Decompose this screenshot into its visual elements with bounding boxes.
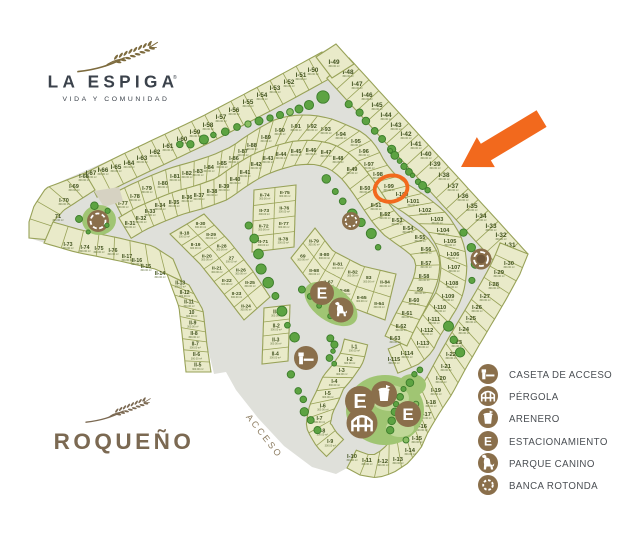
svg-text:300.00 m²: 300.00 m² <box>192 174 203 177</box>
svg-text:300.00 m²: 300.00 m² <box>168 205 179 208</box>
svg-text:300.00 m²: 300.00 m² <box>279 211 290 214</box>
svg-text:300.00 m²: 300.00 m² <box>458 332 469 335</box>
svg-text:300.00 m²: 300.00 m² <box>444 244 455 247</box>
svg-text:300.00 m²: 300.00 m² <box>447 189 458 192</box>
svg-text:300.00 m²: 300.00 m² <box>124 226 135 229</box>
svg-text:300.00 m²: 300.00 m² <box>495 238 506 241</box>
svg-text:300.00 m²: 300.00 m² <box>191 357 202 360</box>
svg-text:300.00 m²: 300.00 m² <box>420 266 431 269</box>
svg-text:300.00 m²: 300.00 m² <box>78 179 89 182</box>
svg-text:300.00 m²: 300.00 m² <box>317 408 328 411</box>
svg-text:300.00 m²: 300.00 m² <box>274 133 285 136</box>
svg-text:300.00 m²: 300.00 m² <box>259 198 270 201</box>
svg-text:300.00 m²: 300.00 m² <box>240 309 251 312</box>
svg-text:300.00 m²: 300.00 m² <box>466 209 477 212</box>
svg-text:300.00 m²: 300.00 m² <box>465 321 476 324</box>
svg-text:300.00 m²: 300.00 m² <box>400 137 411 140</box>
svg-text:300.00 m²: 300.00 m² <box>370 208 381 211</box>
svg-text:300.00 m²: 300.00 m² <box>259 213 270 216</box>
svg-text:300.00 m²: 300.00 m² <box>181 176 192 179</box>
svg-text:300.00 m²: 300.00 m² <box>349 350 360 353</box>
svg-text:300.00 m²: 300.00 m² <box>392 462 403 465</box>
svg-text:300.00 m²: 300.00 m² <box>335 137 346 140</box>
svg-text:300.00 m²: 300.00 m² <box>411 441 422 444</box>
svg-text:300.00 m²: 300.00 m² <box>188 336 199 339</box>
svg-text:300.00 m²: 300.00 m² <box>290 154 301 157</box>
svg-text:300.00 m²: 300.00 m² <box>211 271 222 274</box>
svg-text:VIDA Y COMUNIDAD: VIDA Y COMUNIDAD <box>62 96 169 103</box>
svg-text:300.00 m²: 300.00 m² <box>149 155 160 158</box>
svg-text:300.00 m²: 300.00 m² <box>52 219 63 222</box>
svg-text:300.00 m²: 300.00 m² <box>244 285 255 288</box>
svg-text:300.00 m²: 300.00 m² <box>346 172 357 175</box>
svg-text:300.00 m²: 300.00 m² <box>183 305 194 308</box>
svg-text:300.00 m²: 300.00 m² <box>189 135 200 138</box>
svg-text:300.00 m²: 300.00 m² <box>62 247 73 250</box>
svg-text:300.00 m²: 300.00 m² <box>380 118 391 121</box>
svg-text:300.00 m²: 300.00 m² <box>279 195 290 198</box>
svg-text:300.00 m²: 300.00 m² <box>445 357 456 360</box>
svg-text:300.00 m²: 300.00 m² <box>358 154 369 157</box>
svg-text:300.00 m²: 300.00 m² <box>186 315 197 318</box>
svg-text:300.00 m²: 300.00 m² <box>431 222 442 225</box>
svg-text:ESTACIONAMIENTO: ESTACIONAMIENTO <box>509 437 608 448</box>
svg-text:300.00 m²: 300.00 m² <box>488 287 499 290</box>
svg-text:300.00 m²: 300.00 m² <box>471 310 482 313</box>
svg-text:300.00 m²: 300.00 m² <box>250 167 261 170</box>
svg-text:300.00 m²: 300.00 m² <box>135 221 146 224</box>
svg-text:300.00 m²: 300.00 m² <box>275 157 286 160</box>
svg-text:300.00 m²: 300.00 m² <box>190 247 201 250</box>
svg-text:300.00 m²: 300.00 m² <box>479 299 490 302</box>
svg-text:300.00 m²: 300.00 m² <box>493 275 504 278</box>
svg-text:300.00 m²: 300.00 m² <box>260 140 271 143</box>
svg-text:300.00 m²: 300.00 m² <box>235 273 246 276</box>
svg-text:300.00 m²: 300.00 m² <box>110 170 121 173</box>
svg-text:300.00 m²: 300.00 m² <box>420 157 431 160</box>
svg-text:300.00 m²: 300.00 m² <box>169 179 180 182</box>
svg-text:300.00 m²: 300.00 m² <box>446 286 457 289</box>
svg-text:300.00 m²: 300.00 m² <box>306 129 317 132</box>
svg-text:300.00 m²: 300.00 m² <box>290 129 301 132</box>
svg-text:300.00 m²: 300.00 m² <box>322 396 333 399</box>
svg-text:CASETA DE ACCESO: CASETA DE ACCESO <box>509 370 612 381</box>
svg-text:300.00 m²: 300.00 m² <box>190 347 201 350</box>
svg-text:300.00 m²: 300.00 m² <box>359 191 370 194</box>
svg-text:300.00 m²: 300.00 m² <box>401 316 412 319</box>
svg-text:300.00 m²: 300.00 m² <box>408 303 419 306</box>
svg-text:300.00 m²: 300.00 m² <box>140 269 151 272</box>
svg-text:300.00 m²: 300.00 m² <box>388 362 399 365</box>
svg-text:300.00 m²: 300.00 m² <box>278 226 289 229</box>
svg-text:300.00 m²: 300.00 m² <box>154 208 165 211</box>
svg-text:300.00 m²: 300.00 m² <box>305 153 316 156</box>
svg-text:300.00 m²: 300.00 m² <box>421 333 432 336</box>
svg-text:300.00 m²: 300.00 m² <box>320 132 331 135</box>
svg-text:300.00 m²: 300.00 m² <box>319 257 330 260</box>
svg-text:300.00 m²: 300.00 m² <box>328 65 339 68</box>
svg-text:300.00 m²: 300.00 m² <box>420 252 431 255</box>
svg-text:300.00 m²: 300.00 m² <box>215 120 226 123</box>
svg-text:300.00 m²: 300.00 m² <box>430 393 441 396</box>
svg-text:PARQUE CANINO: PARQUE CANINO <box>509 459 595 470</box>
svg-text:300.00 m²: 300.00 m² <box>379 217 390 220</box>
svg-text:300.00 m²: 300.00 m² <box>389 341 400 344</box>
svg-text:300.00 m²: 300.00 m² <box>179 295 190 298</box>
svg-text:300.00 m²: 300.00 m² <box>256 98 267 101</box>
svg-text:300.00 m²: 300.00 m² <box>371 108 382 111</box>
svg-text:300.00 m²: 300.00 m² <box>383 189 394 192</box>
svg-text:300.00 m²: 300.00 m² <box>270 357 281 360</box>
svg-text:300.00 m²: 300.00 m² <box>162 149 173 152</box>
svg-text:300.00 m²: 300.00 m² <box>457 199 468 202</box>
svg-text:300.00 m²: 300.00 m² <box>404 453 415 456</box>
svg-text:300.00 m²: 300.00 m² <box>129 199 140 202</box>
svg-text:300.00 m²: 300.00 m² <box>417 346 428 349</box>
svg-text:300.00 m²: 300.00 m² <box>117 206 128 209</box>
svg-text:300.00 m²: 300.00 m² <box>407 204 418 207</box>
svg-text:300.00 m²: 300.00 m² <box>402 231 413 234</box>
svg-text:300.00 m²: 300.00 m² <box>395 329 406 332</box>
svg-text:300.00 m²: 300.00 m² <box>175 285 186 288</box>
svg-text:E: E <box>484 434 492 448</box>
svg-text:300.00 m²: 300.00 m² <box>216 248 227 251</box>
svg-text:300.00 m²: 300.00 m² <box>93 251 104 254</box>
svg-text:E: E <box>317 286 328 303</box>
svg-text:300.00 m²: 300.00 m² <box>448 270 459 273</box>
svg-text:300.00 m²: 300.00 m² <box>154 276 165 279</box>
svg-text:300.00 m²: 300.00 m² <box>270 343 281 346</box>
svg-text:300.00 m²: 300.00 m² <box>157 186 168 189</box>
svg-text:300.00 m²: 300.00 m² <box>295 78 306 81</box>
svg-text:300.00 m²: 300.00 m² <box>332 267 343 270</box>
svg-text:300.00 m²: 300.00 m² <box>141 191 152 194</box>
svg-text:300.00 m²: 300.00 m² <box>226 260 237 263</box>
svg-text:300.00 m²: 300.00 m² <box>344 362 355 365</box>
svg-text:300.00 m²: 300.00 m² <box>418 279 429 282</box>
svg-text:300.00 m²: 300.00 m² <box>237 154 248 157</box>
svg-text:ROQUEÑO: ROQUEÑO <box>54 429 195 454</box>
svg-text:300.00 m²: 300.00 m² <box>438 178 449 181</box>
svg-text:300.00 m²: 300.00 m² <box>416 429 427 432</box>
svg-text:300.00 m²: 300.00 m² <box>379 285 390 288</box>
svg-text:300.00 m²: 300.00 m² <box>58 203 69 206</box>
svg-text:LA ESPIGA: LA ESPIGA <box>48 72 179 92</box>
svg-text:300.00 m²: 300.00 m² <box>242 105 253 108</box>
svg-text:ARENERO: ARENERO <box>509 414 560 425</box>
svg-text:300.00 m²: 300.00 m² <box>246 148 257 151</box>
svg-text:300.00 m²: 300.00 m² <box>195 226 206 229</box>
svg-text:300.00 m²: 300.00 m² <box>193 198 204 201</box>
svg-text:300.00 m²: 300.00 m² <box>347 275 358 278</box>
svg-text:PÉRGOLA: PÉRGOLA <box>509 392 559 403</box>
svg-text:300.00 m²: 300.00 m² <box>503 266 514 269</box>
svg-text:300.00 m²: 300.00 m² <box>434 310 445 313</box>
svg-text:300.00 m²: 300.00 m² <box>425 405 436 408</box>
svg-text:300.00 m²: 300.00 m² <box>346 459 357 462</box>
svg-text:300.00 m²: 300.00 m² <box>201 258 212 261</box>
svg-text:300.00 m²: 300.00 m² <box>308 244 319 247</box>
svg-text:300.00 m²: 300.00 m² <box>401 356 412 359</box>
svg-text:300.00 m²: 300.00 m² <box>342 75 353 78</box>
svg-text:300.00 m²: 300.00 m² <box>361 463 372 466</box>
svg-text:300.00 m²: 300.00 m² <box>144 214 155 217</box>
svg-text:®: ® <box>173 74 177 81</box>
svg-text:300.00 m²: 300.00 m² <box>262 161 273 164</box>
svg-text:300.00 m²: 300.00 m² <box>258 229 269 232</box>
svg-text:300.00 m²: 300.00 m² <box>429 167 440 170</box>
svg-text:300.00 m²: 300.00 m² <box>216 166 227 169</box>
svg-text:300.00 m²: 300.00 m² <box>363 280 374 283</box>
svg-text:300.00 m²: 300.00 m² <box>329 384 340 387</box>
svg-text:300.00 m²: 300.00 m² <box>356 300 367 303</box>
svg-text:300.00 m²: 300.00 m² <box>231 296 242 299</box>
svg-text:300.00 m²: 300.00 m² <box>442 299 453 302</box>
svg-text:300.00 m²: 300.00 m² <box>440 369 451 372</box>
svg-text:E: E <box>402 405 413 424</box>
svg-text:300.00 m²: 300.00 m² <box>320 155 331 158</box>
svg-text:300.00 m²: 300.00 m² <box>428 322 439 325</box>
svg-text:300.00 m²: 300.00 m² <box>410 147 421 150</box>
svg-text:300.00 m²: 300.00 m² <box>447 257 458 260</box>
svg-text:300.00 m²: 300.00 m² <box>192 368 203 371</box>
svg-text:300.00 m²: 300.00 m² <box>229 182 240 185</box>
svg-text:300.00 m²: 300.00 m² <box>437 233 448 236</box>
svg-text:300.00 m²: 300.00 m² <box>123 166 134 169</box>
svg-text:300.00 m²: 300.00 m² <box>187 326 198 329</box>
svg-text:300.00 m²: 300.00 m² <box>283 85 294 88</box>
svg-text:300.00 m²: 300.00 m² <box>332 161 343 164</box>
svg-text:300.00 m²: 300.00 m² <box>269 91 280 94</box>
svg-text:300.00 m²: 300.00 m² <box>68 189 79 192</box>
svg-text:300.00 m²: 300.00 m² <box>218 189 229 192</box>
svg-text:300.00 m²: 300.00 m² <box>179 236 190 239</box>
svg-text:300.00 m²: 300.00 m² <box>435 381 446 384</box>
svg-text:300.00 m²: 300.00 m² <box>97 173 108 176</box>
svg-text:300.00 m²: 300.00 m² <box>350 144 361 147</box>
svg-text:300.00 m²: 300.00 m² <box>205 237 216 240</box>
svg-text:300.00 m²: 300.00 m² <box>79 250 90 253</box>
svg-text:300.00 m²: 300.00 m² <box>206 194 217 197</box>
svg-text:300.00 m²: 300.00 m² <box>325 444 336 447</box>
svg-text:300.00 m²: 300.00 m² <box>377 464 388 467</box>
svg-text:300.00 m²: 300.00 m² <box>221 283 232 286</box>
svg-text:300.00 m²: 300.00 m² <box>228 113 239 116</box>
svg-text:BANCA ROTONDA: BANCA ROTONDA <box>509 481 598 492</box>
svg-text:300.00 m²: 300.00 m² <box>203 170 214 173</box>
svg-text:300.00 m²: 300.00 m² <box>373 306 384 309</box>
svg-text:300.00 m²: 300.00 m² <box>361 98 372 101</box>
svg-text:300.00 m²: 300.00 m² <box>475 219 486 222</box>
svg-text:300.00 m²: 300.00 m² <box>239 175 250 178</box>
svg-text:300.00 m²: 300.00 m² <box>307 73 318 76</box>
svg-text:300.00 m²: 300.00 m² <box>136 161 147 164</box>
svg-text:300.00 m²: 300.00 m² <box>181 200 192 203</box>
svg-text:300.00 m²: 300.00 m² <box>391 223 402 226</box>
svg-text:300.00 m²: 300.00 m² <box>314 421 325 424</box>
svg-text:300.00 m²: 300.00 m² <box>297 259 308 262</box>
svg-text:300.00 m²: 300.00 m² <box>336 373 347 376</box>
svg-text:300.00 m²: 300.00 m² <box>202 128 213 131</box>
svg-text:300.00 m²: 300.00 m² <box>258 244 269 247</box>
svg-text:300.00 m²: 300.00 m² <box>414 240 425 243</box>
svg-text:300.00 m²: 300.00 m² <box>419 213 430 216</box>
svg-text:300.00 m²: 300.00 m² <box>414 292 425 295</box>
svg-text:300.00 m²: 300.00 m² <box>107 253 118 256</box>
svg-text:300.00 m²: 300.00 m² <box>308 273 319 276</box>
svg-text:300.00 m²: 300.00 m² <box>278 242 289 245</box>
svg-text:300.00 m²: 300.00 m² <box>271 329 282 332</box>
svg-text:300.00 m²: 300.00 m² <box>351 87 362 90</box>
